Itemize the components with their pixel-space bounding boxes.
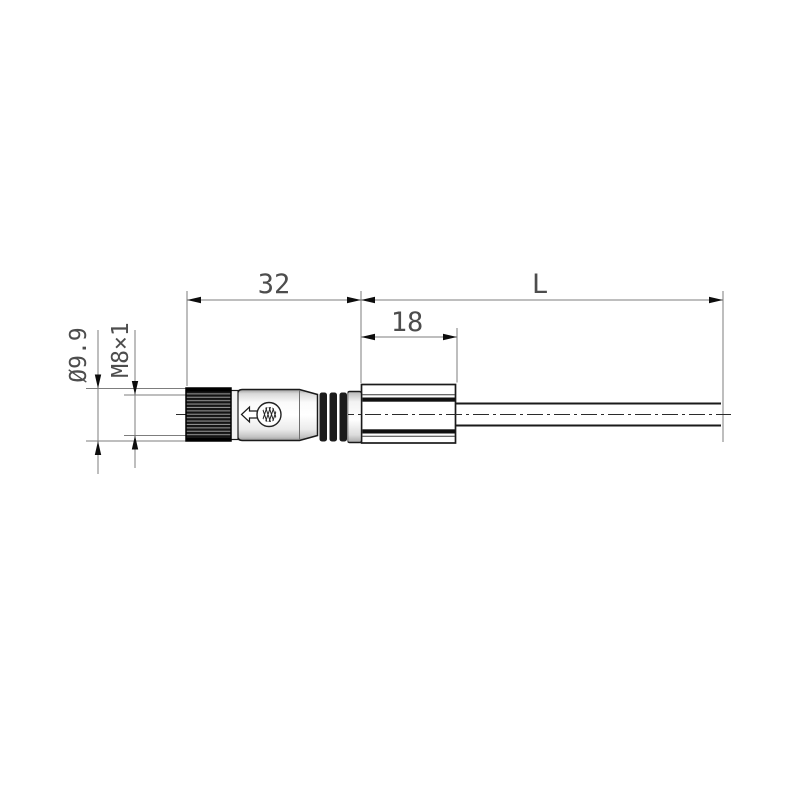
boot-band-bottom — [363, 429, 456, 433]
arrowhead-L-right — [709, 297, 723, 303]
arrowhead-32-left — [187, 297, 201, 303]
strain-relief-rings — [316, 392, 348, 443]
strain-relief-collar — [348, 392, 362, 443]
arrowhead-18-right — [443, 334, 457, 340]
knurl-texture — [186, 388, 231, 441]
arrowhead-od-top — [95, 375, 101, 389]
dimension-label-32: 32 — [258, 269, 291, 300]
arrowhead-L-left — [361, 297, 375, 303]
arrowhead-thread-bottom — [132, 436, 138, 450]
weidmueller-logo-icon — [257, 403, 281, 427]
knurled-nut — [186, 388, 231, 441]
dimension-label-diameter: Ø9.9 — [66, 327, 92, 382]
knurl-bottom-edge — [186, 438, 231, 442]
dimension-label-18: 18 — [391, 307, 424, 338]
ring-3 — [340, 393, 348, 442]
arrowhead-18-left — [361, 334, 375, 340]
dimension-label-L: L — [532, 269, 548, 300]
ring-1 — [320, 393, 328, 442]
cable-boot — [362, 385, 456, 444]
arrowhead-od-bottom — [95, 441, 101, 455]
dimension-label-thread: M8×1 — [108, 322, 134, 377]
connector-cable-drawing: 32 L 18 Ø9.9 M8×1 — [0, 0, 800, 800]
boot-outline — [362, 385, 456, 444]
technical-drawing-canvas: 32 L 18 Ø9.9 M8×1 — [0, 0, 800, 800]
boot-band-top — [363, 398, 456, 402]
knurl-top-edge — [186, 388, 231, 392]
arrowhead-32-right — [347, 297, 361, 303]
ring-2 — [330, 393, 338, 442]
